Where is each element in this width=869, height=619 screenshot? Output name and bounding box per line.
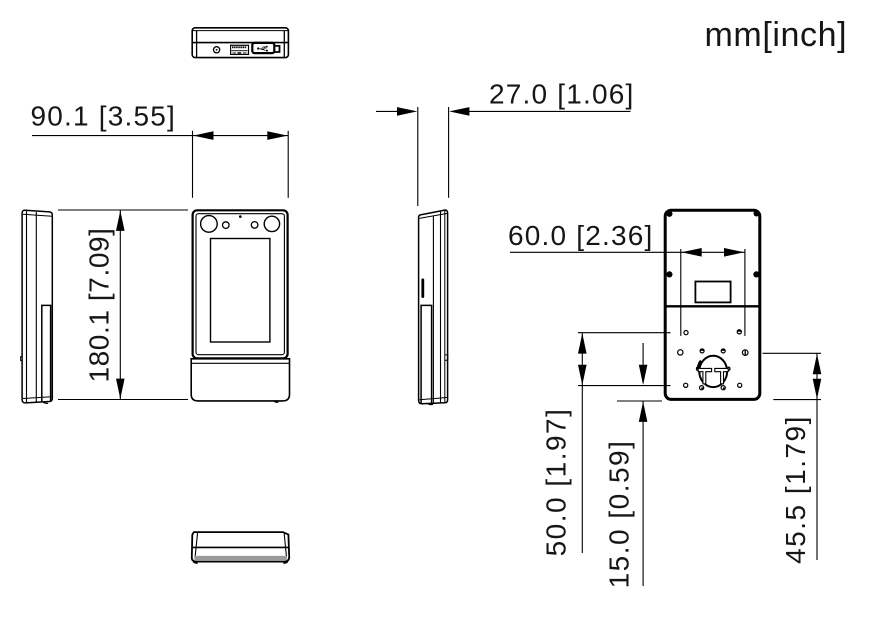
svg-text:90.1 [3.55]: 90.1 [3.55]	[31, 101, 177, 132]
svg-text:mm[inch]: mm[inch]	[705, 16, 848, 54]
svg-text:27.0 [1.06]: 27.0 [1.06]	[489, 79, 635, 110]
svg-text:50.0 [1.97]: 50.0 [1.97]	[541, 408, 572, 557]
svg-text:180.1 [7.09]: 180.1 [7.09]	[84, 227, 115, 382]
svg-text:45.5 [1.79]: 45.5 [1.79]	[780, 415, 811, 564]
svg-text:15.0 [0.59]: 15.0 [0.59]	[604, 440, 635, 589]
svg-text:60.0 [2.36]: 60.0 [2.36]	[508, 220, 654, 251]
